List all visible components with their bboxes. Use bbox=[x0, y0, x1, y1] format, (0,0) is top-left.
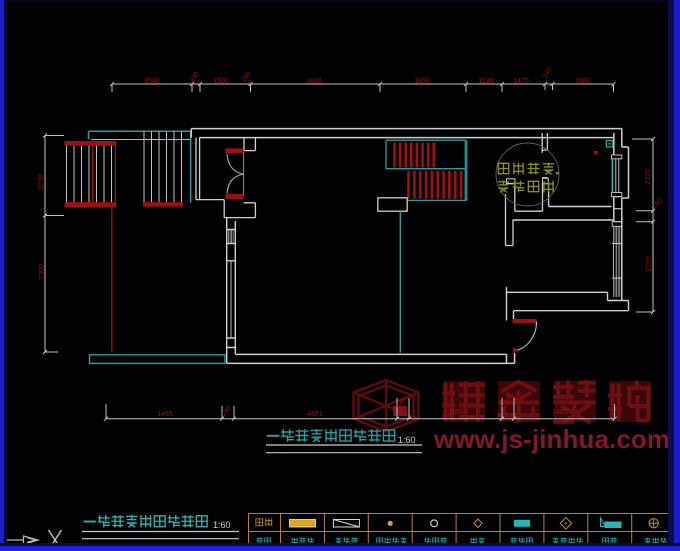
svg-text:1470: 1470 bbox=[513, 78, 529, 85]
svg-text:1:60: 1:60 bbox=[213, 520, 231, 530]
svg-text:www.js-jinhua.com: www.js-jinhua.com bbox=[433, 424, 670, 454]
svg-text:3540: 3540 bbox=[144, 78, 160, 85]
svg-text:3630: 3630 bbox=[306, 79, 322, 86]
svg-text:1800: 1800 bbox=[448, 409, 464, 416]
svg-text:1465: 1465 bbox=[552, 409, 568, 416]
svg-text:1465: 1465 bbox=[157, 411, 173, 418]
svg-text:7350: 7350 bbox=[39, 264, 46, 280]
svg-text:3730: 3730 bbox=[38, 174, 45, 190]
svg-text:1:60: 1:60 bbox=[398, 435, 416, 445]
svg-text:1950: 1950 bbox=[414, 78, 430, 85]
svg-text:1500: 1500 bbox=[213, 78, 229, 85]
svg-text:1680: 1680 bbox=[575, 78, 591, 85]
svg-text:1130: 1130 bbox=[478, 78, 493, 85]
svg-text:2770: 2770 bbox=[646, 256, 653, 272]
svg-text:2370: 2370 bbox=[645, 169, 652, 185]
svg-text:4881: 4881 bbox=[307, 411, 323, 418]
